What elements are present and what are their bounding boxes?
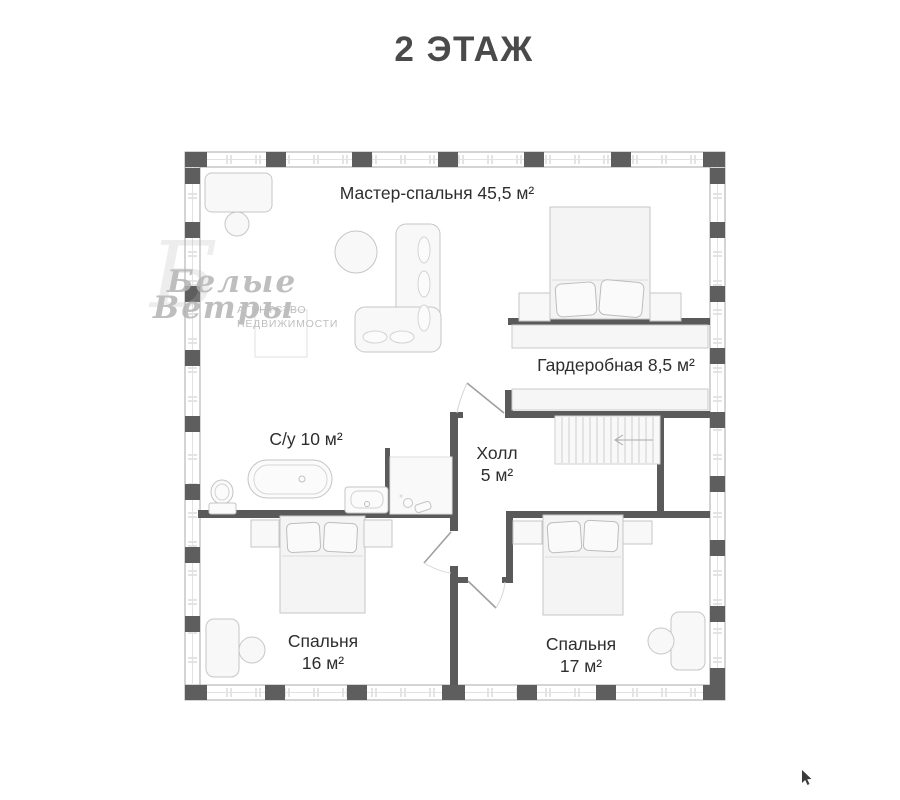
door-bedroom16 xyxy=(424,532,451,573)
bed16 xyxy=(280,516,365,613)
nightstand-right xyxy=(650,293,681,321)
watermark-agency: АГЕНТСТВО НЕДВИЖИМОСТИ xyxy=(237,304,338,331)
room-label-bathroom: С/у 10 м² xyxy=(269,429,342,451)
nightstand-right xyxy=(623,521,652,544)
closet-top xyxy=(512,325,708,348)
nightstand-left xyxy=(251,520,279,547)
staircase xyxy=(555,416,660,464)
bed17 xyxy=(543,515,623,615)
room-label-hall: Холл 5 м² xyxy=(476,443,517,487)
room-label-bedroom17: Спальня 17 м² xyxy=(546,634,616,678)
bathroom-fixtures xyxy=(209,457,452,514)
nightstand-right xyxy=(364,520,392,547)
desk xyxy=(206,619,239,677)
floorplan-drawing xyxy=(0,0,900,800)
room-label-master: Мастер-спальня 45,5 м² xyxy=(340,183,534,205)
master-bed xyxy=(550,207,650,319)
desk xyxy=(671,612,705,670)
mouse-cursor xyxy=(801,770,813,786)
desk-chair xyxy=(225,212,249,236)
door-master-hall xyxy=(457,383,504,413)
desk-chair xyxy=(239,637,265,663)
desk xyxy=(205,173,272,212)
floorplan-page: { "page": { "title": "2 ЭТАЖ" }, "rooms"… xyxy=(0,0,900,800)
nightstand-left xyxy=(519,293,550,321)
agency-watermark: Б Белые Ветры АГЕНТСТВО НЕДВИЖИМОСТИ xyxy=(152,246,342,351)
room-label-bedroom16: Спальня 16 м² xyxy=(288,631,358,675)
shower-area xyxy=(390,457,452,514)
room-label-wardrobe: Гардеробная 8,5 м² xyxy=(537,355,695,377)
nightstand-left xyxy=(513,521,542,544)
toilet xyxy=(209,480,236,514)
shower-head xyxy=(404,499,413,508)
sink xyxy=(345,487,388,513)
closet-bottom xyxy=(512,389,708,410)
desk-chair xyxy=(648,628,674,654)
door-bedroom17 xyxy=(468,581,505,608)
bathtub xyxy=(248,460,332,498)
